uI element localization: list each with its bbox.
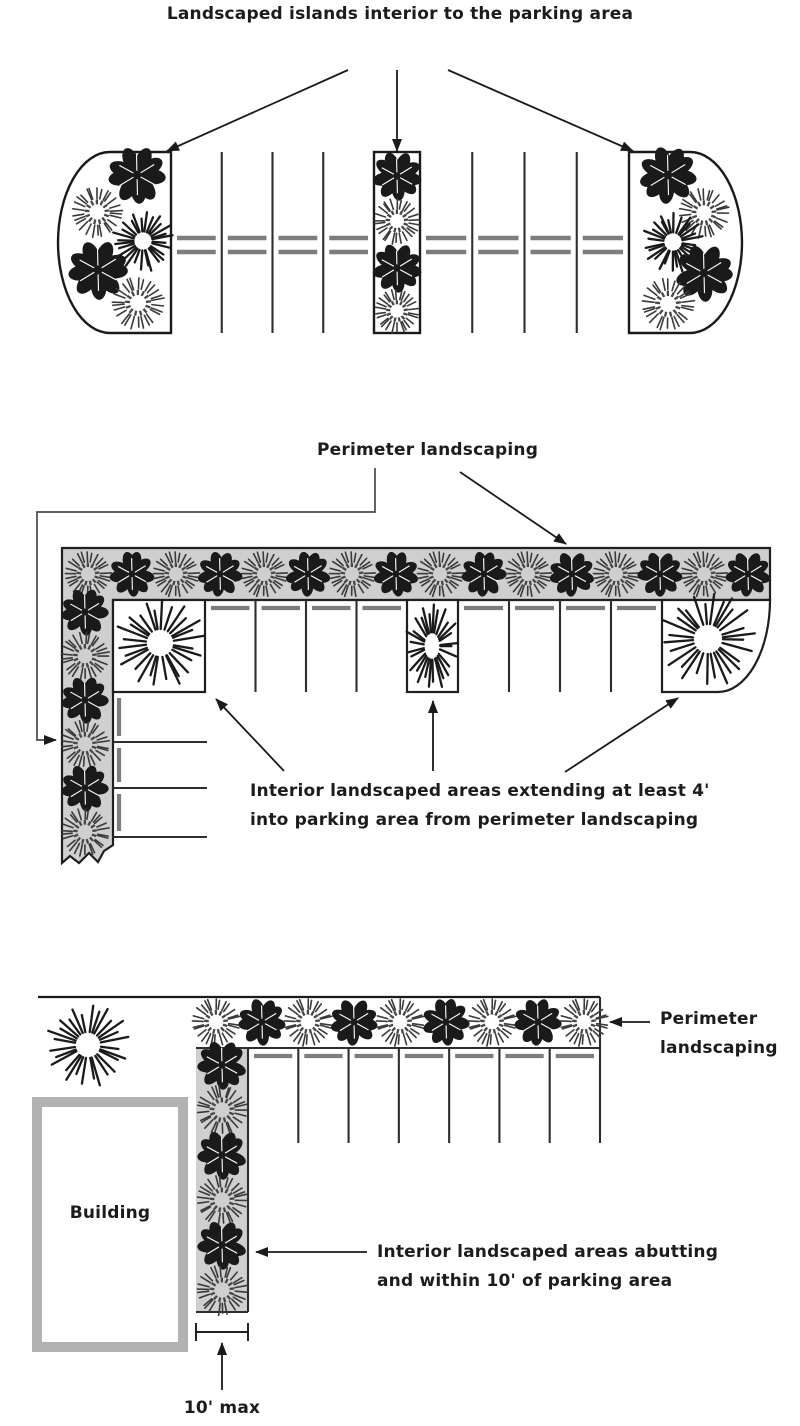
dimension-label: 10' max xyxy=(162,1394,282,1423)
parking-stalls-left xyxy=(113,698,207,837)
perimeter-arrow xyxy=(460,472,566,544)
corner-landscaped-area xyxy=(662,600,770,692)
landscaping-diagram-page: Landscaped islands interior to the parki… xyxy=(0,0,800,1426)
interior-areas-caption-bottom: Interior landscaped areas abutting and w… xyxy=(377,1238,718,1296)
light-shrub-icon xyxy=(284,999,331,1046)
tree-icon xyxy=(48,1006,128,1086)
building-label: Building xyxy=(50,1199,170,1228)
interior-areas-caption-mid: Interior landscaped areas extending at l… xyxy=(250,777,710,835)
dark-shrub-icon xyxy=(422,998,471,1047)
perimeter-landscaping-caption-mid: Perimeter landscaping xyxy=(317,436,538,465)
perimeter-landscaping-caption-bottom: Perimeter landscaping xyxy=(660,1005,778,1063)
dimension-10ft xyxy=(196,1323,248,1390)
parking-stalls xyxy=(254,1048,594,1143)
caption-arrows xyxy=(167,70,633,151)
islands-caption: Landscaped islands interior to the parki… xyxy=(0,0,800,29)
interior-pointer-arrows xyxy=(216,698,678,772)
dark-shrub-icon xyxy=(238,998,287,1046)
figure-building-landscaping xyxy=(37,997,650,1390)
light-shrub-icon xyxy=(376,999,423,1046)
dark-shrub-icon xyxy=(330,998,379,1046)
dark-shrub-icon xyxy=(514,998,562,1047)
light-shrub-icon xyxy=(468,999,515,1046)
light-shrub-icon xyxy=(192,999,239,1046)
figure-landscaped-islands xyxy=(58,70,742,333)
